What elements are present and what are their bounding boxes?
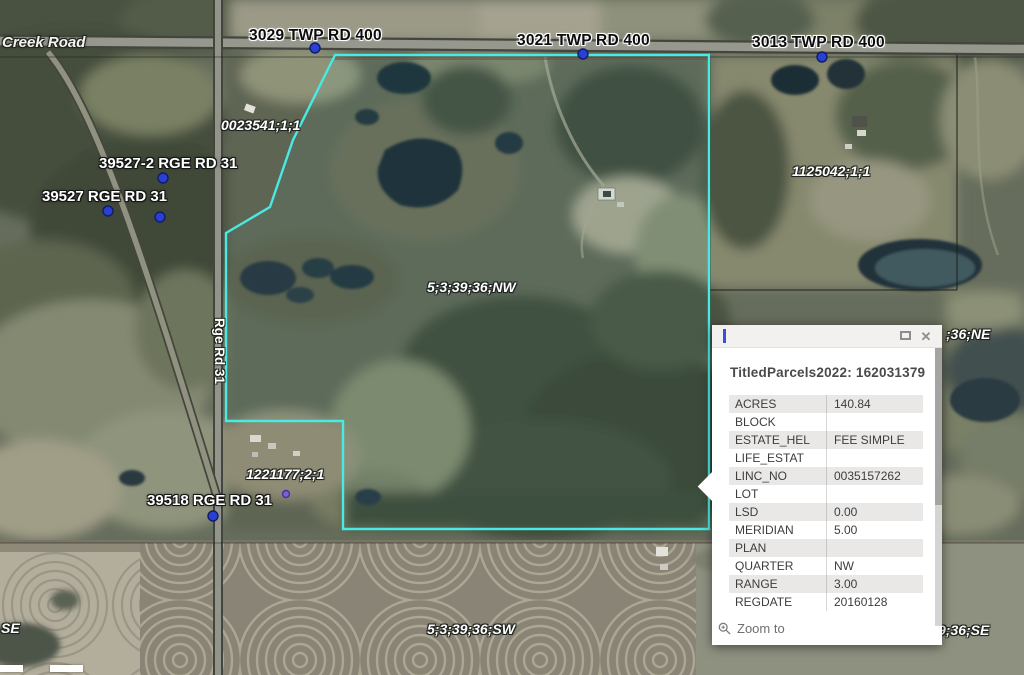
address-point[interactable] <box>817 52 827 62</box>
maximize-icon[interactable] <box>900 331 911 340</box>
popup-scrollbar-track[interactable] <box>935 348 942 626</box>
table-row: ESTATE_HELFEE SIMPLE <box>729 431 923 449</box>
table-row: BLOCK <box>729 413 923 431</box>
field-name: BLOCK <box>729 415 826 429</box>
field-name: PLAN <box>729 541 826 555</box>
zoom-to-label: Zoom to <box>737 621 785 636</box>
field-name: LOT <box>729 487 826 501</box>
table-row: LSD0.00 <box>729 503 923 521</box>
address-point[interactable] <box>578 49 588 59</box>
field-name: LIFE_ESTAT <box>729 451 826 465</box>
table-row: PLAN <box>729 539 923 557</box>
text-cursor <box>723 329 726 343</box>
table-row: REGDATE20160128 <box>729 593 923 611</box>
table-row: LIFE_ESTAT <box>729 449 923 467</box>
field-name: ACRES <box>729 397 826 411</box>
field-name: QUARTER <box>729 559 826 573</box>
attribute-table: ACRES140.84 BLOCK ESTATE_HELFEE SIMPLE L… <box>729 395 923 611</box>
gis-map-application: Creek Road 3029 TWP RD 400 3021 TWP RD 4… <box>0 0 1024 675</box>
table-row: ACRES140.84 <box>729 395 923 413</box>
address-point[interactable] <box>103 206 113 216</box>
field-value: 20160128 <box>826 593 923 611</box>
magnifier-icon <box>718 622 731 635</box>
zoom-to-link[interactable]: Zoom to <box>718 621 785 636</box>
table-row: LOT <box>729 485 923 503</box>
table-row: QUARTERNW <box>729 557 923 575</box>
field-value <box>826 485 923 503</box>
field-value: 3.00 <box>826 575 923 593</box>
field-value: 140.84 <box>826 395 923 413</box>
address-point[interactable] <box>208 511 218 521</box>
table-row: RANGE3.00 <box>729 575 923 593</box>
feature-info-popup: ✕ TitledParcels2022: 162031379 ACRES140.… <box>712 325 942 645</box>
field-name: LSD <box>729 505 826 519</box>
address-point[interactable] <box>310 43 320 53</box>
field-value <box>826 449 923 467</box>
field-name: RANGE <box>729 577 826 591</box>
popup-scrollbar-thumb[interactable] <box>935 348 942 505</box>
table-row: MERIDIAN5.00 <box>729 521 923 539</box>
field-value: FEE SIMPLE <box>826 431 923 449</box>
field-value: 0035157262 <box>826 467 923 485</box>
utility-point[interactable] <box>283 491 290 498</box>
field-name: MERIDIAN <box>729 523 826 537</box>
field-name: ESTATE_HEL <box>729 433 826 447</box>
popup-titlebar[interactable]: ✕ <box>712 325 942 348</box>
address-point[interactable] <box>155 212 165 222</box>
field-value: 0.00 <box>826 503 923 521</box>
close-icon[interactable]: ✕ <box>918 327 934 345</box>
popup-title: TitledParcels2022: 162031379 <box>730 365 925 380</box>
field-name: REGDATE <box>729 595 826 609</box>
field-value <box>826 539 923 557</box>
field-name: LINC_NO <box>729 469 826 483</box>
field-value: NW <box>826 557 923 575</box>
field-value: 5.00 <box>826 521 923 539</box>
scale-bar-segment <box>50 665 83 672</box>
scale-bar-segment <box>0 665 23 672</box>
field-value <box>826 413 923 431</box>
address-point[interactable] <box>158 173 168 183</box>
table-row: LINC_NO0035157262 <box>729 467 923 485</box>
